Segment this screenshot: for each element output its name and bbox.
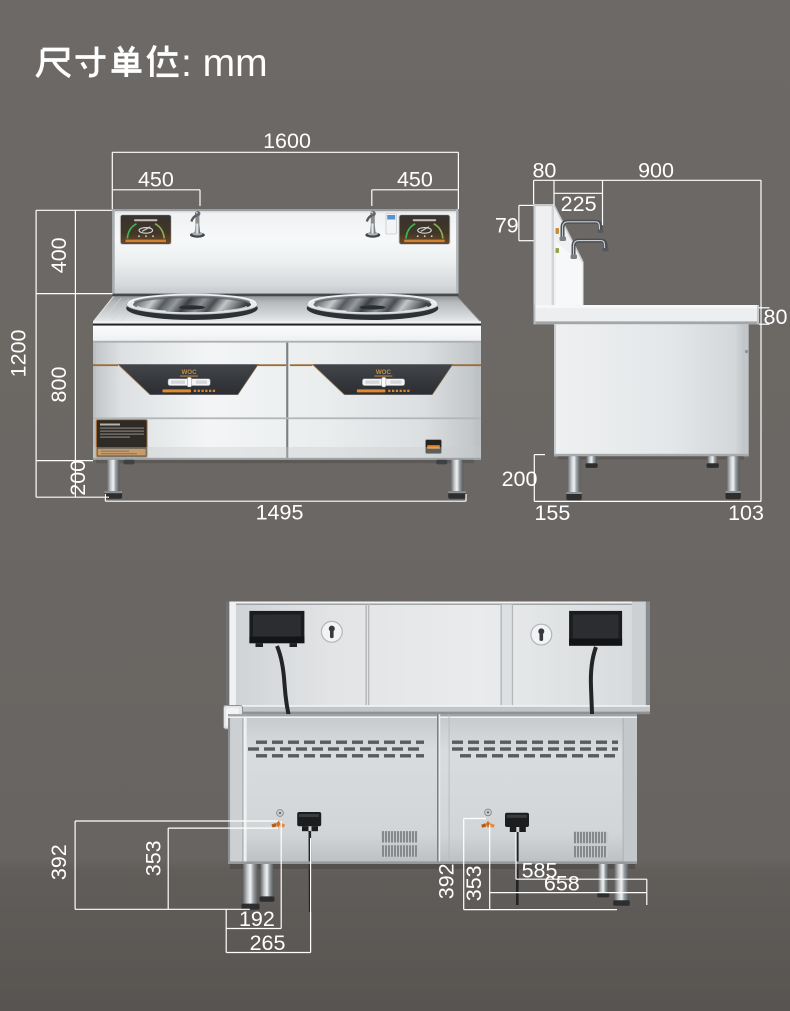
svg-text:900: 900: [638, 159, 674, 183]
svg-text:200: 200: [502, 467, 538, 491]
svg-text:1495: 1495: [256, 501, 304, 525]
svg-text:80: 80: [532, 159, 556, 183]
svg-text:400: 400: [47, 237, 71, 273]
svg-text:WOC: WOC: [376, 369, 392, 376]
svg-text:392: 392: [435, 863, 459, 899]
svg-text:800: 800: [47, 367, 71, 403]
svg-text:WOC: WOC: [181, 369, 197, 376]
svg-text:1600: 1600: [263, 129, 311, 153]
svg-text:80: 80: [764, 305, 788, 329]
svg-text:155: 155: [534, 501, 570, 525]
svg-text:450: 450: [138, 168, 174, 192]
svg-text:392: 392: [47, 844, 71, 880]
svg-text:225: 225: [561, 192, 597, 216]
svg-text:450: 450: [397, 168, 433, 192]
svg-text:79: 79: [495, 214, 519, 238]
svg-text:: mm: : mm: [181, 42, 268, 85]
svg-text:353: 353: [142, 840, 166, 876]
svg-text:1200: 1200: [7, 329, 31, 377]
svg-text:353: 353: [462, 865, 486, 901]
svg-text:658: 658: [544, 872, 580, 896]
svg-text:103: 103: [728, 501, 764, 525]
svg-text:265: 265: [250, 931, 286, 955]
svg-text:192: 192: [239, 907, 275, 931]
svg-text:200: 200: [66, 460, 90, 496]
